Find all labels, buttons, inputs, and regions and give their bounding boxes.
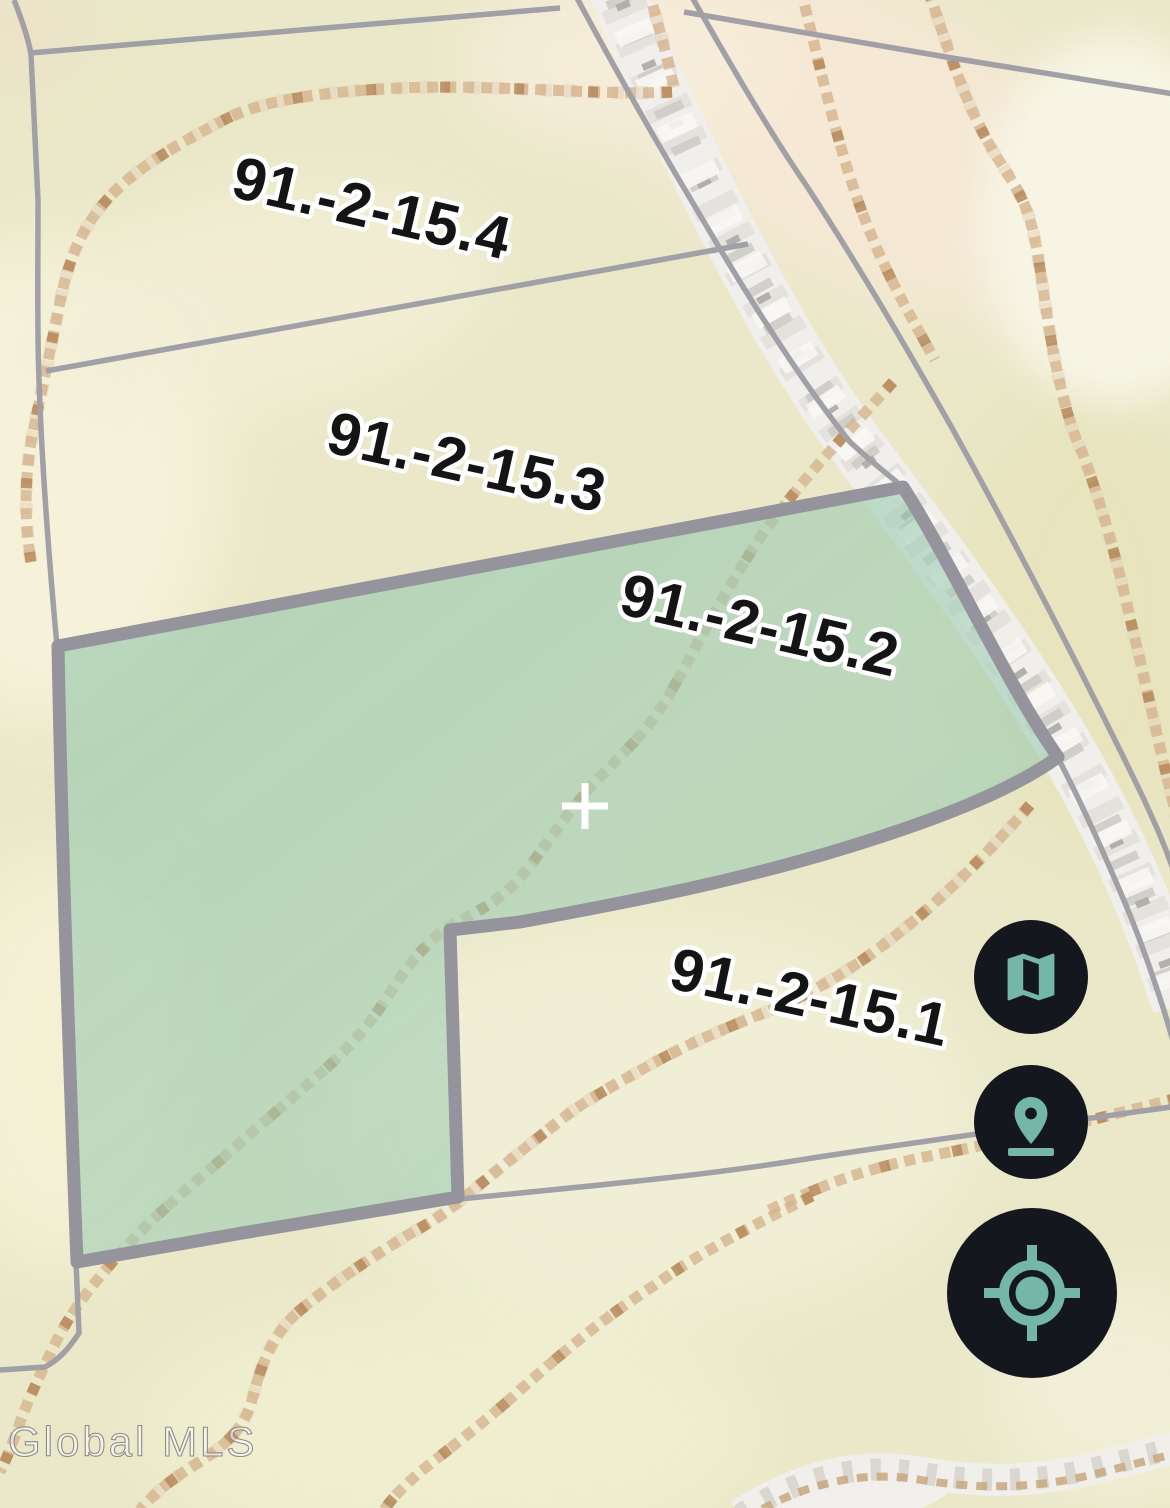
map-canvas: 91.-2-15.4 91.-2-15.3 91.-2-15.2 91.-2-1… <box>0 0 1170 1508</box>
button-background <box>974 920 1088 1034</box>
map-type-button[interactable] <box>974 920 1088 1034</box>
location-pin-underline <box>1008 1148 1054 1156</box>
locate-button[interactable] <box>947 1208 1117 1378</box>
map-view[interactable]: 91.-2-15.4 91.-2-15.3 91.-2-15.2 91.-2-1… <box>0 0 1170 1508</box>
pin-button[interactable] <box>974 1065 1088 1179</box>
watermark: Global MLS <box>8 1418 257 1465</box>
